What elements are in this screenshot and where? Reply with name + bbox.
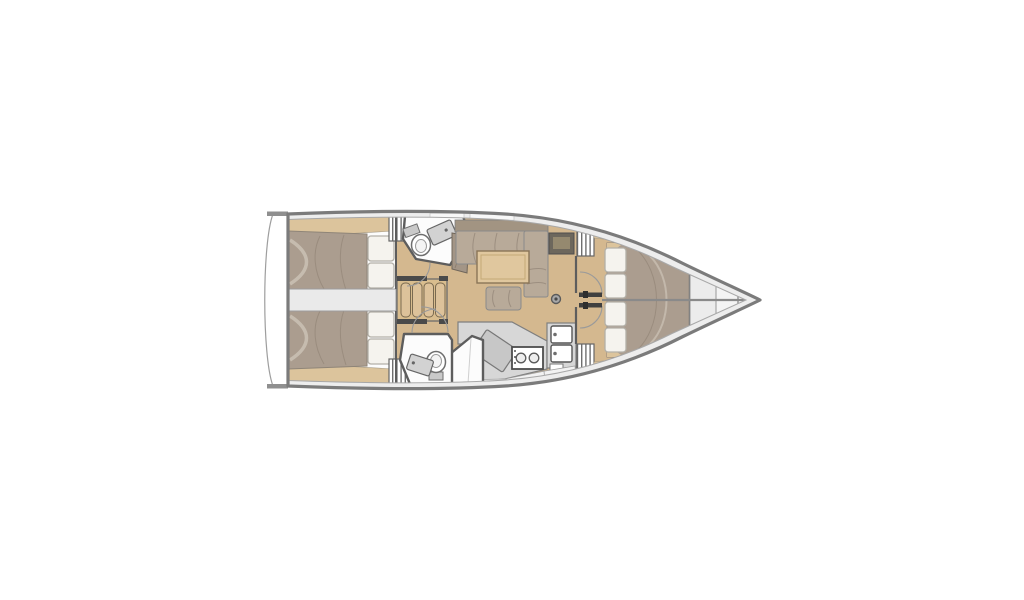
toilet-bowl xyxy=(416,240,427,253)
page-background xyxy=(0,0,1024,600)
pillow xyxy=(605,248,626,272)
pillow xyxy=(605,302,626,326)
stool xyxy=(486,287,521,310)
burner xyxy=(516,353,526,363)
step-rail xyxy=(439,276,448,281)
mast-post xyxy=(552,295,561,304)
saloon-table xyxy=(477,251,529,283)
double-bed xyxy=(288,231,367,291)
pillow xyxy=(368,312,394,337)
swim-platform xyxy=(265,212,288,389)
door-leaf xyxy=(579,303,602,308)
burner xyxy=(529,353,539,363)
door-leaf xyxy=(579,293,602,298)
transom-cap-bottom xyxy=(267,384,288,389)
stove xyxy=(512,347,543,369)
transom-cap-top xyxy=(267,212,288,217)
storage-cabinet xyxy=(549,233,574,254)
pillow xyxy=(605,328,626,352)
companionway-steps xyxy=(397,276,448,324)
pillow xyxy=(368,263,394,288)
pillow xyxy=(605,274,626,298)
engine-compartment xyxy=(288,289,396,311)
swim-platform-outline xyxy=(265,214,288,386)
double-bed xyxy=(288,309,367,369)
step-rail xyxy=(397,319,427,324)
door-handle xyxy=(583,291,588,298)
faucet xyxy=(553,352,557,356)
door-handle xyxy=(583,302,588,309)
boat-floor-plan xyxy=(0,0,1024,600)
faucet xyxy=(553,333,557,337)
